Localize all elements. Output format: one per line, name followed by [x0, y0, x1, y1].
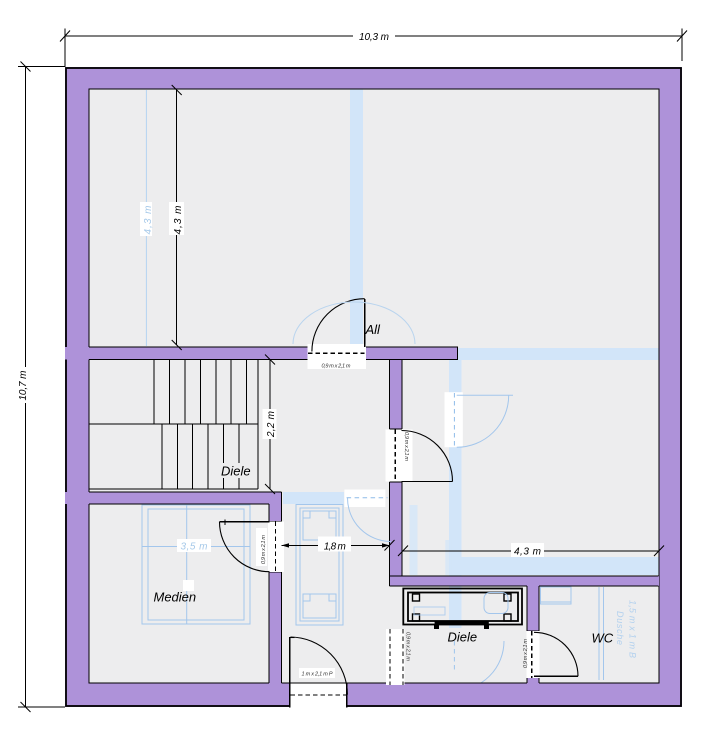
svg-text:0,9 m x 2,1 m: 0,9 m x 2,1 m [523, 639, 529, 668]
svg-text:10,3 m: 10,3 m [359, 32, 389, 43]
svg-text:1,8 m: 1,8 m [324, 542, 346, 553]
svg-text:Dusche: Dusche [615, 611, 625, 645]
svg-text:4,3 m: 4,3 m [143, 206, 154, 235]
svg-text:0,9 m x 2,1 m: 0,9 m x 2,1 m [403, 432, 409, 461]
svg-text:0,9 m x 2,1 m: 0,9 m x 2,1 m [322, 364, 351, 370]
svg-text:10,7 m: 10,7 m [18, 371, 29, 401]
svg-text:0,9 m x 2,1 m: 0,9 m x 2,1 m [405, 632, 411, 661]
svg-text:4,3 m: 4,3 m [173, 206, 184, 235]
svg-text:1,5 m x 1 m B: 1,5 m x 1 m B [628, 600, 638, 658]
svg-text:Diele: Diele [448, 630, 478, 645]
svg-text:3,5 m: 3,5 m [181, 542, 208, 553]
svg-text:Diele: Diele [221, 464, 251, 479]
svg-text:Medien: Medien [154, 590, 197, 605]
svg-text:2,2 m: 2,2 m [266, 411, 277, 438]
svg-text:4,3 m: 4,3 m [514, 547, 541, 558]
svg-text:1 m x 2,1 m P: 1 m x 2,1 m P [302, 672, 333, 678]
svg-text:All: All [365, 322, 382, 337]
svg-text:WC: WC [592, 631, 614, 646]
svg-text:0,9 m x 2,1 m: 0,9 m x 2,1 m [261, 535, 267, 564]
